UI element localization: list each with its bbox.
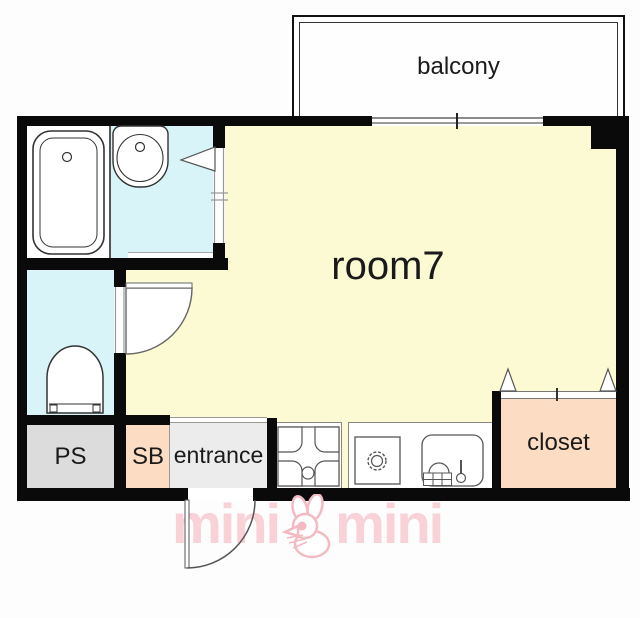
closet-side-wall [492, 391, 501, 500]
toilet-floor [27, 270, 114, 415]
ps-label: PS [27, 425, 114, 488]
closet-label: closet [501, 398, 616, 488]
floorplan-canvas: balcony room7 PS SB entrance closet mini [0, 0, 640, 618]
bathroom-floor [27, 126, 110, 258]
right-wall [616, 116, 629, 500]
toilet-wall-upper [114, 270, 126, 287]
washer-space-block [275, 422, 342, 489]
washroom-wall-lower [213, 243, 225, 270]
bath-washroom-divider [109, 126, 111, 258]
logo-word-right: mini [335, 496, 442, 552]
kitchen-counter-block [348, 422, 493, 491]
balcony-area: balcony [292, 15, 625, 118]
rabbit-icon [281, 494, 333, 560]
entrance-side-wall [267, 418, 277, 500]
washroom-wall-upper [213, 116, 225, 148]
minimini-logo: mini mini [172, 494, 472, 566]
sb-label: SB [126, 425, 170, 488]
window-center-tick [456, 113, 458, 129]
bathroom-bottom-wall [17, 258, 228, 270]
logo-word-left: mini [172, 496, 279, 552]
left-wall [17, 116, 27, 501]
balcony-label: balcony [294, 17, 623, 116]
entrance-label: entrance [170, 422, 267, 488]
main-room-label: room7 [228, 238, 548, 294]
washroom-floor [110, 126, 213, 258]
ps-top-wall [17, 415, 170, 425]
